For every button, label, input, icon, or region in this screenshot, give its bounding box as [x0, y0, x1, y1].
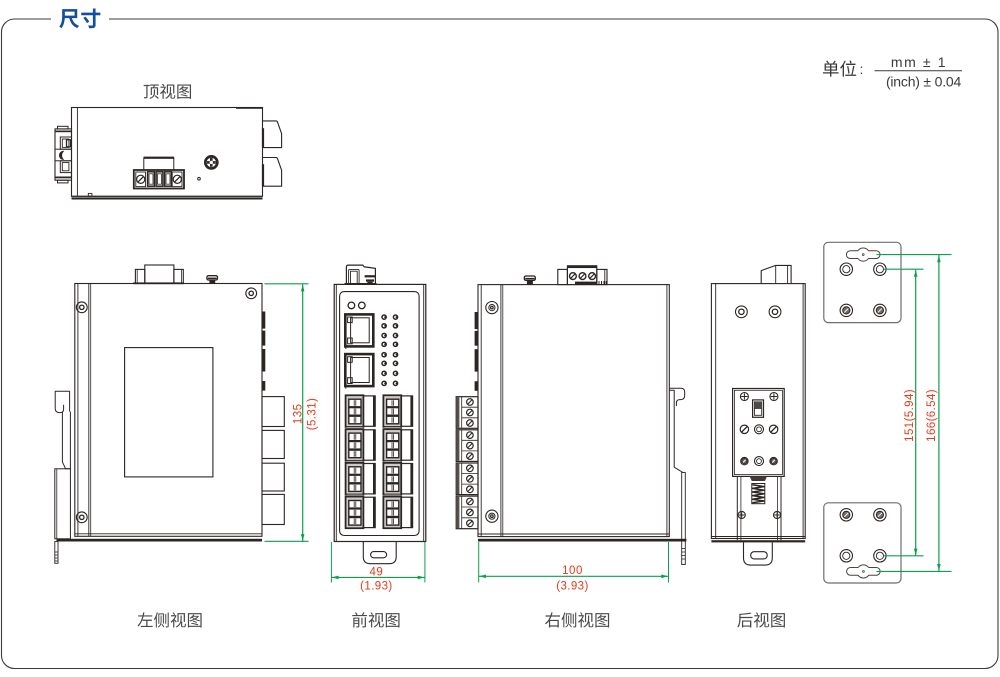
svg-text:(inch) ± 0.04: (inch) ± 0.04	[886, 73, 962, 89]
svg-text:135: 135	[293, 403, 305, 424]
svg-text::: :	[860, 61, 864, 77]
svg-text:mm ± 1: mm ± 1	[891, 54, 947, 70]
svg-text:(1.93): (1.93)	[360, 580, 392, 592]
svg-text:100: 100	[562, 565, 583, 577]
svg-text:166(6.54): 166(6.54)	[926, 389, 938, 442]
svg-text:151(5.94): 151(5.94)	[904, 389, 916, 442]
svg-text:(3.93): (3.93)	[556, 580, 588, 592]
svg-text:49: 49	[370, 567, 384, 579]
svg-text:(5.31): (5.31)	[306, 398, 318, 430]
